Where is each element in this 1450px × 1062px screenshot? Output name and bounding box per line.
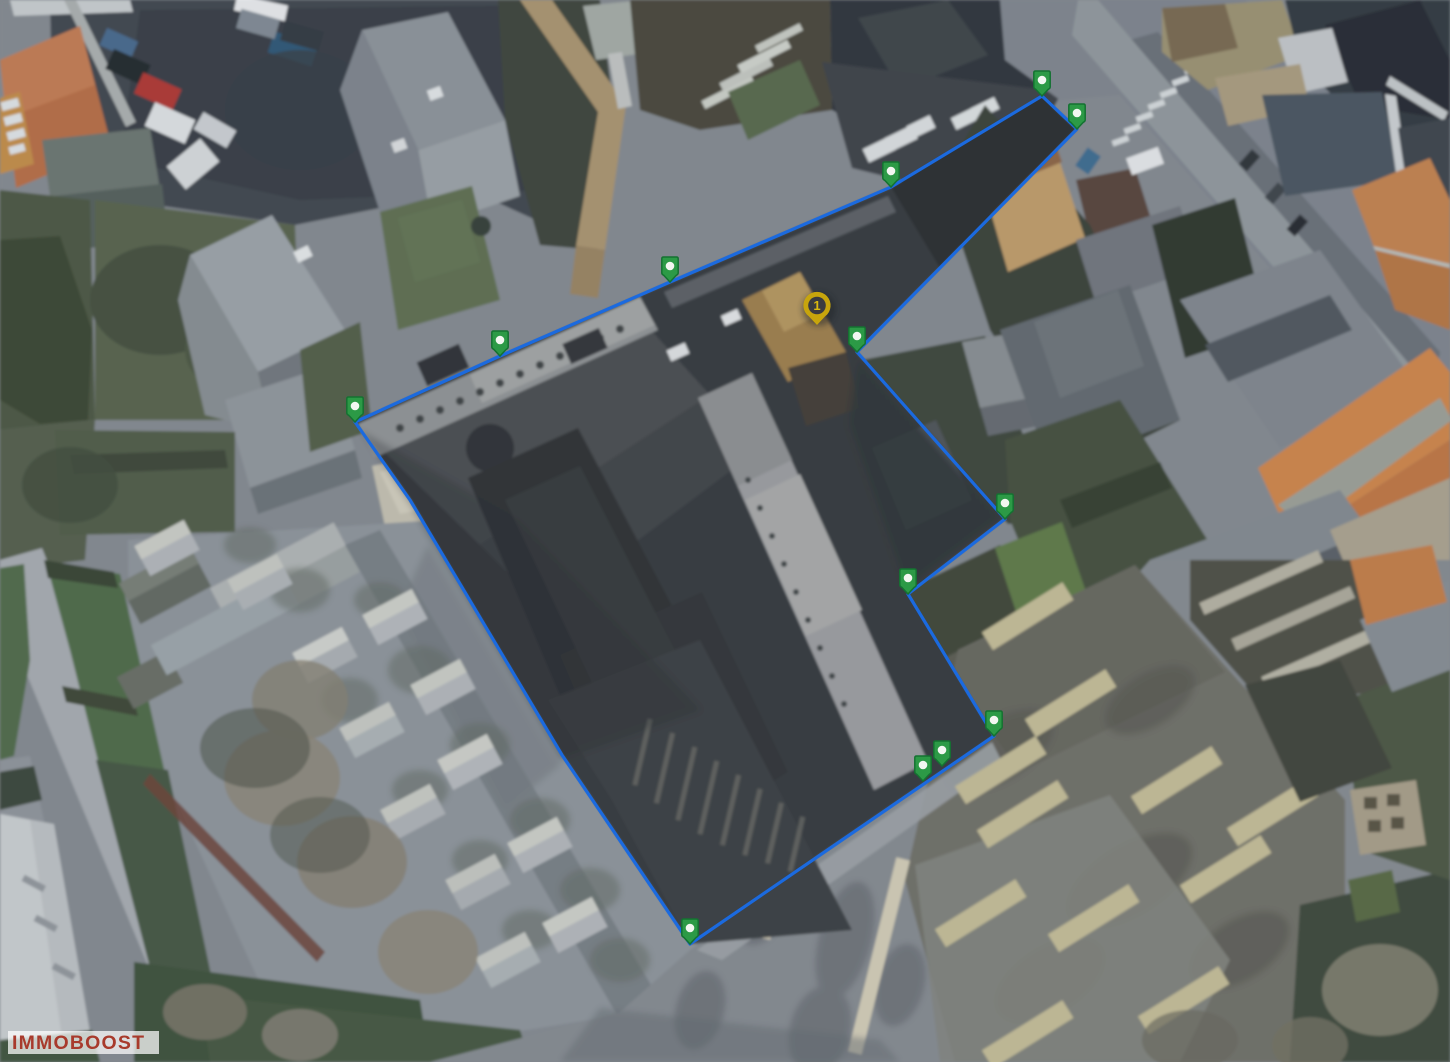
svg-text:IMMOBOOST: IMMOBOOST xyxy=(12,1032,145,1054)
svg-text:1: 1 xyxy=(813,298,820,313)
